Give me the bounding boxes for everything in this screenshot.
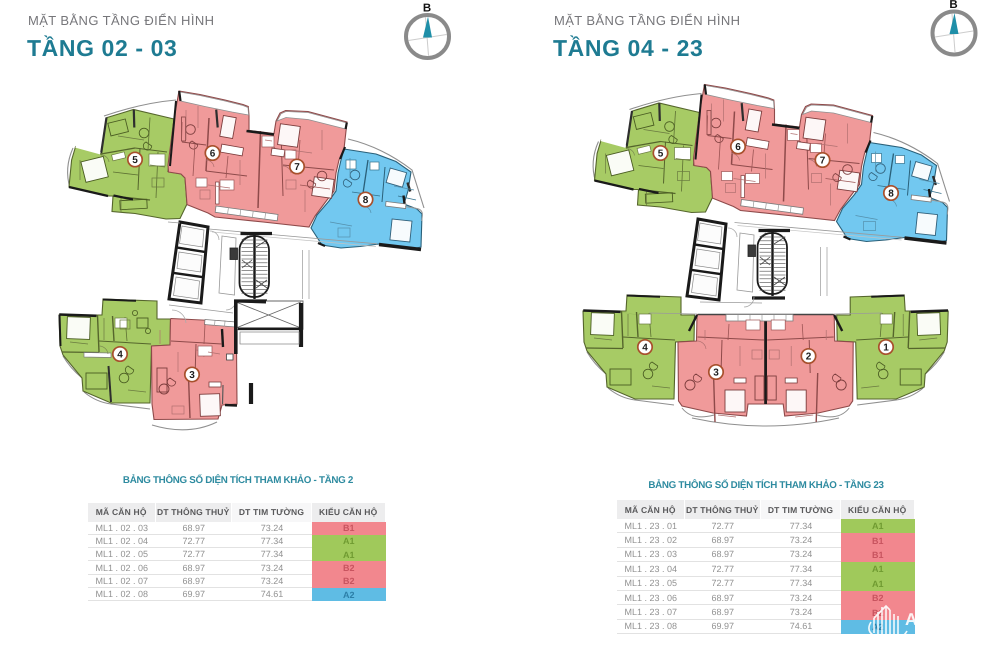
svg-text:B: B xyxy=(423,3,431,15)
svg-text:4: 4 xyxy=(642,342,648,353)
svg-text:7: 7 xyxy=(820,155,826,166)
svg-text:6: 6 xyxy=(735,142,741,153)
svg-text:8: 8 xyxy=(363,195,369,206)
svg-text:3: 3 xyxy=(189,370,195,381)
svg-text:8: 8 xyxy=(888,188,894,199)
svg-text:7: 7 xyxy=(294,162,300,173)
svg-text:2: 2 xyxy=(806,351,812,362)
svg-text:B: B xyxy=(949,0,957,11)
svg-text:6: 6 xyxy=(210,148,216,159)
svg-text:3: 3 xyxy=(713,367,719,378)
svg-text:1: 1 xyxy=(883,342,889,353)
svg-text:4: 4 xyxy=(117,349,123,360)
svg-text:5: 5 xyxy=(658,148,664,159)
svg-text:5: 5 xyxy=(132,155,138,166)
svg-text:A: A xyxy=(905,610,917,629)
